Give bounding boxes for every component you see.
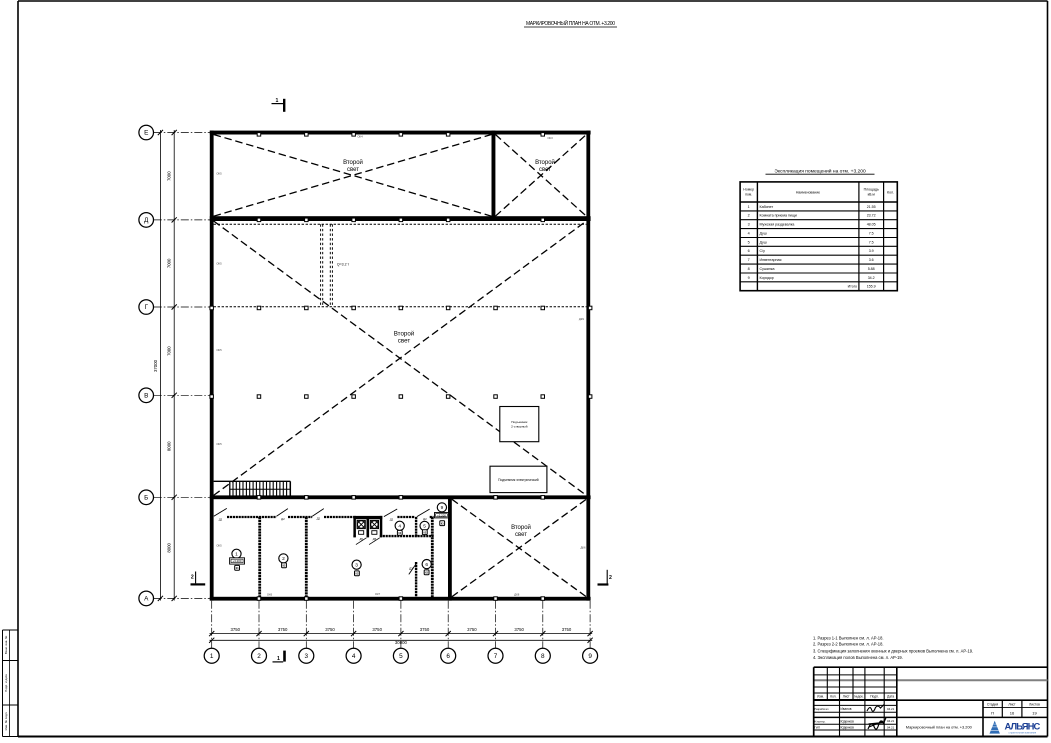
- svg-text:3: 3: [748, 223, 750, 227]
- svg-text:Итого: Итого: [848, 285, 857, 289]
- svg-text:Экспликация помещений на отм.: Экспликация помещений на отм. +3.200: [774, 167, 866, 174]
- svg-text:48.05: 48.05: [867, 223, 876, 227]
- svg-text:7.5: 7.5: [869, 231, 874, 235]
- svg-text:ДК8: ДК8: [514, 593, 520, 597]
- svg-text:Б: Б: [144, 495, 148, 502]
- svg-text:6: 6: [425, 562, 428, 568]
- svg-text:Кол.: Кол.: [887, 191, 894, 195]
- svg-text:1: 1: [277, 656, 280, 662]
- svg-text:Номер: Номер: [743, 188, 754, 192]
- svg-text:ОК6: ОК6: [267, 593, 273, 597]
- svg-text:2. Разрез 2-2 Выполнен см. л.: 2. Разрез 2-2 Выполнен см. л. АР-18.: [813, 642, 884, 647]
- svg-text:ОК5: ОК5: [216, 544, 222, 548]
- svg-text:2: 2: [257, 653, 261, 660]
- svg-text:30000: 30000: [395, 640, 408, 645]
- svg-text:3750: 3750: [420, 627, 430, 632]
- svg-text:34.2: 34.2: [868, 276, 875, 280]
- svg-text:кВ.м: кВ.м: [868, 193, 876, 197]
- svg-text:23.72: 23.72: [867, 214, 876, 218]
- svg-text:2: 2: [609, 575, 612, 581]
- svg-text:7: 7: [494, 653, 498, 660]
- svg-text:8000: 8000: [167, 543, 172, 553]
- svg-text:7000: 7000: [167, 171, 172, 181]
- svg-text:ОК5: ОК5: [216, 348, 222, 352]
- svg-text:4: 4: [748, 231, 750, 235]
- svg-text:Площадь: Площадь: [864, 188, 879, 192]
- svg-text:7: 7: [748, 258, 750, 262]
- svg-text:5.88: 5.88: [868, 267, 875, 271]
- svg-text:Иванов: Иванов: [841, 707, 852, 711]
- svg-text:ОК3: ОК3: [547, 136, 553, 140]
- svg-text:свет: свет: [539, 167, 551, 173]
- svg-text:ДК6: ДК6: [580, 546, 586, 550]
- svg-text:5: 5: [423, 524, 426, 530]
- svg-text:3. Спецификация заполнения око: 3. Спецификация заполнения оконных и две…: [813, 649, 973, 654]
- svg-text:Душ: Душ: [760, 240, 767, 244]
- svg-text:04.21: 04.21: [887, 707, 895, 711]
- svg-text:свет: свет: [398, 338, 411, 345]
- svg-text:Д: Д: [144, 217, 149, 224]
- svg-text:ОК5: ОК5: [216, 172, 222, 176]
- svg-text:16: 16: [1010, 711, 1015, 716]
- svg-text:Второй: Второй: [511, 524, 531, 531]
- svg-text:3750: 3750: [231, 627, 241, 632]
- svg-text:свет: свет: [515, 532, 527, 538]
- svg-text:3.6: 3.6: [869, 258, 874, 262]
- svg-text:ОК5: ОК5: [216, 262, 222, 266]
- svg-text:Инв. № подл.: Инв. № подл.: [4, 711, 8, 730]
- svg-text:7000: 7000: [167, 258, 172, 268]
- svg-text:Д2: Д2: [423, 517, 427, 521]
- svg-text:9: 9: [441, 505, 444, 511]
- svg-text:3: 3: [305, 653, 309, 660]
- svg-text:Юденков: Юденков: [841, 719, 855, 723]
- svg-text:8000: 8000: [167, 441, 172, 451]
- svg-text:9: 9: [588, 653, 592, 660]
- svg-text:1: 1: [210, 653, 214, 660]
- svg-text:Комната приема пищи: Комната приема пищи: [760, 214, 797, 218]
- svg-text:2-створный: 2-створный: [511, 425, 528, 429]
- svg-text:04.21: 04.21: [887, 725, 895, 729]
- svg-text:Сушилка: Сушилка: [760, 267, 775, 271]
- svg-text:Д2: Д2: [390, 517, 394, 521]
- svg-text:№док.: №док.: [854, 695, 863, 699]
- svg-text:Подп.: Подп.: [870, 695, 879, 699]
- svg-text:6: 6: [748, 249, 750, 253]
- svg-text:Q=3.2 т: Q=3.2 т: [337, 262, 350, 266]
- svg-text:+3.200: +3.200: [437, 513, 446, 517]
- svg-text:Д2: Д2: [219, 517, 223, 521]
- svg-text:1: 1: [748, 205, 750, 209]
- svg-text:Дата: Дата: [887, 695, 894, 699]
- svg-text:1: 1: [276, 98, 279, 104]
- svg-text:3750: 3750: [562, 627, 572, 632]
- svg-text:4: 4: [352, 653, 356, 660]
- svg-text:Инвентарная: Инвентарная: [760, 258, 782, 262]
- svg-text:С/у: С/у: [760, 249, 766, 253]
- svg-text:Мужская раздевалка: Мужская раздевалка: [760, 223, 795, 227]
- svg-text:Разработал: Разработал: [814, 707, 829, 711]
- svg-text:П: П: [991, 711, 994, 716]
- svg-text:Наименование: Наименование: [796, 191, 820, 195]
- svg-text:Кабинет: Кабинет: [760, 205, 774, 209]
- svg-text:9: 9: [748, 276, 750, 280]
- svg-text:Подп. и дата: Подп. и дата: [4, 674, 8, 692]
- svg-text:свет: свет: [347, 167, 359, 173]
- svg-text:ДК9: ДК9: [579, 317, 585, 321]
- svg-text:2: 2: [282, 556, 285, 562]
- svg-text:3: 3: [355, 562, 358, 568]
- svg-text:Второй: Второй: [394, 331, 415, 338]
- svg-text:1. Разрез 1-1 Выполнен см. л.: 1. Разрез 1-1 Выполнен см. л. АР-18.: [813, 635, 884, 640]
- svg-text:Лист: Лист: [1008, 703, 1016, 707]
- svg-text:МАРКИРОВОЧНЫЙ ПЛАН НА ОТМ. +3.: МАРКИРОВОЧНЫЙ ПЛАН НА ОТМ. +3.200: [526, 19, 615, 27]
- svg-text:19: 19: [1032, 711, 1037, 716]
- svg-text:04.21: 04.21: [887, 719, 895, 723]
- svg-text:ОК4: ОК4: [357, 135, 363, 139]
- svg-text:3750: 3750: [372, 627, 382, 632]
- svg-text:АЛЬЯНС: АЛЬЯНС: [1005, 721, 1041, 732]
- svg-text:ГИП: ГИП: [814, 726, 820, 730]
- svg-text:3750: 3750: [467, 627, 477, 632]
- svg-text:1: 1: [235, 552, 238, 558]
- svg-text:строительная компания: строительная компания: [1008, 731, 1036, 734]
- svg-text:21.55: 21.55: [867, 205, 876, 209]
- svg-text:Лист: Лист: [843, 695, 850, 699]
- svg-text:Юденков: Юденков: [841, 726, 855, 730]
- svg-text:Д3: Д3: [409, 567, 413, 571]
- svg-text:8: 8: [748, 267, 750, 271]
- svg-text:Душ: Душ: [760, 231, 767, 235]
- svg-text:4. Экспликация полов Выполнена: 4. Экспликация полов Выполнена см. л. АР…: [813, 655, 903, 660]
- svg-text:Листов: Листов: [1029, 703, 1040, 707]
- svg-text:А: А: [144, 596, 149, 603]
- svg-text:Е: Е: [144, 130, 148, 137]
- svg-text:6: 6: [446, 653, 450, 660]
- svg-text:7000: 7000: [167, 346, 172, 356]
- svg-text:Подъемник электрический: Подъемник электрический: [498, 478, 539, 482]
- svg-text:Стадия: Стадия: [987, 703, 998, 707]
- svg-text:3750: 3750: [325, 627, 335, 632]
- svg-text:2: 2: [748, 214, 750, 218]
- svg-text:Изм.: Изм.: [817, 695, 824, 699]
- svg-text:3.9: 3.9: [869, 249, 874, 253]
- svg-text:3750: 3750: [514, 627, 524, 632]
- svg-text:7.5: 7.5: [869, 240, 874, 244]
- svg-text:Н.контр.: Н.контр.: [814, 719, 825, 723]
- svg-text:Д2: Д2: [281, 517, 285, 521]
- svg-text:3750: 3750: [278, 627, 288, 632]
- svg-text:+3.200: +3.200: [233, 559, 242, 563]
- svg-text:Д2: Д2: [317, 517, 321, 521]
- svg-text:пом.: пом.: [745, 193, 752, 197]
- svg-text:37000: 37000: [153, 359, 158, 372]
- svg-text:ОК7: ОК7: [375, 592, 381, 596]
- svg-text:155.9: 155.9: [867, 285, 876, 289]
- svg-text:Второй: Второй: [535, 159, 555, 166]
- svg-text:Второй: Второй: [343, 159, 363, 166]
- svg-text:4: 4: [398, 524, 401, 530]
- svg-text:5: 5: [748, 240, 750, 244]
- svg-text:Г: Г: [144, 304, 148, 311]
- svg-text:8: 8: [541, 653, 545, 660]
- svg-text:Подъемник: Подъемник: [511, 420, 528, 424]
- svg-text:5: 5: [399, 653, 403, 660]
- svg-text:В: В: [144, 393, 148, 400]
- svg-text:Коридор: Коридор: [760, 276, 774, 280]
- svg-text:Кол.: Кол.: [830, 695, 836, 699]
- svg-text:Взам. инв. №: Взам. инв. №: [4, 635, 8, 654]
- svg-text:2: 2: [191, 575, 194, 581]
- svg-text:Маркировочный план на отм. +3.: Маркировочный план на отм. +3.200: [906, 725, 973, 730]
- svg-text:ОК5: ОК5: [216, 442, 222, 446]
